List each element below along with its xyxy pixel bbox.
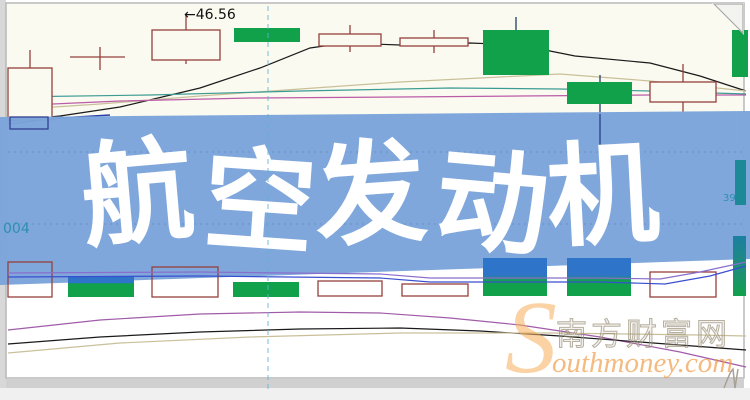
candlestick-up bbox=[8, 68, 52, 120]
candlestick-down bbox=[567, 82, 632, 104]
candlestick-up bbox=[650, 82, 716, 102]
candlestick-down bbox=[483, 30, 549, 75]
watermark-en: outhmoney.com bbox=[552, 347, 733, 379]
stock-chart-thumbnail: 航空发动机 004 39 ←46.56 S 南方财富网 outhmoney.co… bbox=[0, 0, 750, 400]
chart-canvas: 航空发动机 004 39 ←46.56 S 南方财富网 outhmoney.co… bbox=[0, 0, 750, 400]
candlestick-up bbox=[319, 34, 381, 46]
volume-bar-down bbox=[567, 258, 631, 296]
side-teal-bar bbox=[735, 160, 746, 205]
watermark-initial: S bbox=[505, 280, 557, 395]
banner-title: 航空发动机 bbox=[76, 124, 666, 274]
partial-code-label: 004 bbox=[3, 221, 30, 237]
candlestick-down bbox=[234, 28, 300, 42]
partial-value-label: 39 bbox=[723, 193, 736, 204]
candlestick-down bbox=[732, 30, 748, 77]
frame-bottom-highlight bbox=[0, 388, 750, 400]
candlestick-up bbox=[152, 30, 220, 60]
candlestick-up bbox=[400, 38, 468, 46]
price-annotation: ←46.56 bbox=[184, 7, 236, 23]
volume-bar-down bbox=[68, 276, 134, 297]
frame-bottom-strip bbox=[6, 379, 744, 388]
volume-bar-down bbox=[233, 282, 299, 297]
